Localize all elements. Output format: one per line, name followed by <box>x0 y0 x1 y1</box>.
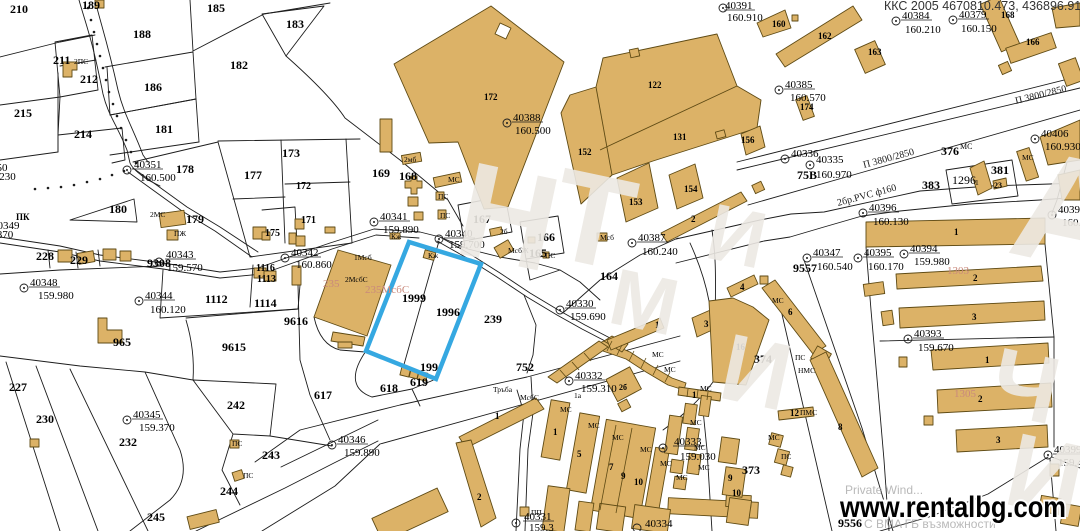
svg-text:40334: 40334 <box>645 518 673 530</box>
svg-text:159.370: 159.370 <box>139 422 175 434</box>
svg-text:Кж: Кж <box>428 251 439 260</box>
svg-text:МС: МС <box>664 365 676 374</box>
svg-text:9615: 9615 <box>222 340 246 354</box>
svg-text:160.210: 160.210 <box>905 24 941 36</box>
svg-text:229: 229 <box>70 253 88 267</box>
svg-text:1: 1 <box>692 390 697 400</box>
svg-text:162: 162 <box>818 31 832 41</box>
svg-text:МС: МС <box>768 433 780 442</box>
svg-text:160.500: 160.500 <box>515 125 551 137</box>
svg-text:ПК: ПК <box>16 212 30 222</box>
svg-text:9557: 9557 <box>793 261 817 275</box>
svg-text:МС: МС <box>560 405 572 414</box>
svg-text:159.570: 159.570 <box>167 262 203 274</box>
svg-text:131: 131 <box>673 132 687 142</box>
svg-text:ПС: ПС <box>440 211 450 220</box>
svg-text:381: 381 <box>991 163 1009 177</box>
svg-text:2МсбС: 2МсбС <box>345 275 368 284</box>
svg-text:1303: 1303 <box>947 265 970 277</box>
svg-text:2: 2 <box>978 394 983 404</box>
svg-text:160.500: 160.500 <box>140 172 176 184</box>
svg-text:159.670: 159.670 <box>918 342 954 354</box>
svg-text:215: 215 <box>14 106 32 120</box>
svg-text:1а: 1а <box>574 391 582 400</box>
svg-text:23: 23 <box>994 181 1002 190</box>
svg-text:10: 10 <box>634 477 644 487</box>
svg-text:178: 178 <box>176 162 194 176</box>
svg-text:154: 154 <box>684 184 698 194</box>
svg-text:230: 230 <box>36 412 54 426</box>
svg-text:159.890: 159.890 <box>344 447 380 459</box>
svg-text:2ПС: 2ПС <box>74 57 88 66</box>
svg-text:618: 618 <box>380 381 398 395</box>
svg-text:6: 6 <box>788 307 793 317</box>
svg-text:214: 214 <box>74 127 92 141</box>
svg-text:199: 199 <box>420 360 438 374</box>
svg-text:173: 173 <box>282 146 300 160</box>
svg-text:9: 9 <box>728 473 733 483</box>
svg-text:160: 160 <box>772 19 786 29</box>
svg-text:245: 245 <box>147 510 165 524</box>
svg-text:171: 171 <box>301 215 316 226</box>
svg-text:3: 3 <box>972 312 977 322</box>
svg-text:182: 182 <box>230 58 248 72</box>
svg-text:1113: 1113 <box>257 274 276 285</box>
svg-text:212: 212 <box>80 72 98 86</box>
svg-text:12: 12 <box>790 408 800 418</box>
svg-text:189: 189 <box>82 0 100 12</box>
svg-text:1: 1 <box>495 411 500 421</box>
svg-text:166: 166 <box>1026 37 1040 47</box>
svg-text:1: 1 <box>985 355 990 365</box>
svg-text:185: 185 <box>207 1 225 15</box>
svg-text:ПС: ПС <box>232 439 242 448</box>
svg-text:163: 163 <box>868 47 882 57</box>
svg-text:5: 5 <box>577 449 582 459</box>
svg-text:ПС: ПС <box>781 452 791 461</box>
svg-text:МС: МС <box>960 142 972 151</box>
svg-text:МсбС: МсбС <box>520 393 539 402</box>
svg-text:228: 228 <box>36 249 54 263</box>
svg-text:МС: МС <box>694 443 706 452</box>
svg-text:122: 122 <box>648 80 662 90</box>
svg-text:75В: 75В <box>797 168 817 182</box>
svg-text:2МС: 2МС <box>150 210 165 219</box>
svg-text:1: 1 <box>954 227 959 237</box>
svg-text:159.980: 159.980 <box>914 256 950 268</box>
svg-text:168: 168 <box>399 169 417 183</box>
svg-text:183: 183 <box>286 17 304 31</box>
svg-text:172: 172 <box>296 181 311 192</box>
svg-text:ПС: ПС <box>438 192 448 201</box>
svg-text:210: 210 <box>10 2 28 16</box>
svg-text:1996: 1996 <box>436 305 460 319</box>
svg-text:175: 175 <box>265 228 280 239</box>
svg-text:169: 169 <box>372 166 390 180</box>
svg-text:ПС: ПС <box>243 471 253 480</box>
svg-text:2б: 2б <box>619 383 627 392</box>
svg-text:160.540: 160.540 <box>817 261 853 273</box>
svg-text:ПМС: ПМС <box>800 408 817 417</box>
svg-text:2: 2 <box>973 273 978 283</box>
svg-text:383: 383 <box>922 178 940 192</box>
svg-text:МС: МС <box>690 418 702 427</box>
svg-text:243: 243 <box>262 448 280 462</box>
svg-text:965: 965 <box>113 335 131 349</box>
svg-text:4: 4 <box>740 282 745 292</box>
svg-text:617: 617 <box>314 388 332 402</box>
svg-text:ПП: ПП <box>531 508 542 517</box>
svg-text:ККС 2005 4670810.473, 436896.9: ККС 2005 4670810.473, 436896.910 <box>884 0 1080 13</box>
svg-text:МС: МС <box>698 463 710 472</box>
svg-text:МС: МС <box>448 175 460 184</box>
svg-text:242: 242 <box>227 398 245 412</box>
svg-text:1: 1 <box>975 178 979 187</box>
svg-text:9: 9 <box>621 471 626 481</box>
svg-text:373: 373 <box>742 463 760 477</box>
svg-text:8: 8 <box>838 422 843 432</box>
svg-text:www.rentalbg.com: www.rentalbg.com <box>839 491 1066 524</box>
svg-text:2: 2 <box>691 214 696 224</box>
svg-text:376: 376 <box>941 144 959 158</box>
svg-text:160.130: 160.130 <box>873 216 909 228</box>
svg-text:МС: МС <box>612 433 624 442</box>
svg-text:1296: 1296 <box>952 173 976 187</box>
svg-text:.870: .870 <box>0 229 14 241</box>
svg-text:159.030: 159.030 <box>680 451 716 463</box>
svg-text:160.970: 160.970 <box>816 169 852 181</box>
svg-text:244: 244 <box>220 484 238 498</box>
svg-text:Кж: Кж <box>391 232 402 241</box>
svg-text:9308: 9308 <box>147 256 171 270</box>
svg-text:40335: 40335 <box>816 154 844 166</box>
svg-text:227: 227 <box>9 380 27 394</box>
svg-text:159.310: 159.310 <box>581 383 617 395</box>
svg-text:2мб: 2мб <box>404 155 416 164</box>
svg-text:Тръба: Тръба <box>493 385 513 394</box>
svg-text:160.230: 160.230 <box>0 171 16 183</box>
svg-text:235: 235 <box>323 278 340 290</box>
svg-text:1114: 1114 <box>254 296 277 310</box>
svg-text:160.170: 160.170 <box>868 261 904 273</box>
svg-text:7: 7 <box>609 462 614 472</box>
svg-text:1305: 1305 <box>954 388 977 400</box>
svg-text:НМС: НМС <box>798 366 815 375</box>
svg-text:160.150: 160.150 <box>961 23 997 35</box>
svg-text:752: 752 <box>516 360 534 374</box>
svg-text:172: 172 <box>484 92 498 102</box>
svg-text:188: 188 <box>133 27 151 41</box>
svg-text:МС: МС <box>676 473 688 482</box>
svg-text:1116: 1116 <box>256 263 275 274</box>
svg-text:619: 619 <box>410 375 428 389</box>
svg-text:МС: МС <box>652 350 664 359</box>
svg-text:181: 181 <box>155 122 173 136</box>
svg-text:160.120: 160.120 <box>150 304 186 316</box>
svg-text:3: 3 <box>996 435 1001 445</box>
svg-text:177: 177 <box>244 168 262 182</box>
svg-text:9616: 9616 <box>284 314 308 328</box>
svg-text:211: 211 <box>53 53 70 67</box>
svg-text:159.980: 159.980 <box>38 290 74 302</box>
svg-text:МС: МС <box>640 445 652 454</box>
svg-text:239: 239 <box>484 312 502 326</box>
svg-text:40336: 40336 <box>791 148 819 160</box>
svg-text:232: 232 <box>119 435 137 449</box>
svg-text:160.910: 160.910 <box>727 12 763 24</box>
svg-text:160.860: 160.860 <box>296 259 332 271</box>
svg-text:179: 179 <box>186 212 204 226</box>
svg-text:1Мсб: 1Мсб <box>354 253 372 262</box>
svg-text:159.690: 159.690 <box>570 311 606 323</box>
svg-text:МС: МС <box>660 459 672 468</box>
svg-text:235МсбС: 235МсбС <box>365 284 409 296</box>
svg-text:174: 174 <box>800 102 814 112</box>
svg-text:159.3: 159.3 <box>529 522 554 531</box>
svg-text:10: 10 <box>732 488 742 498</box>
svg-text:186: 186 <box>144 80 162 94</box>
svg-text:156: 156 <box>741 135 755 145</box>
svg-text:180: 180 <box>109 202 127 216</box>
svg-text:1112: 1112 <box>205 292 228 306</box>
svg-text:3: 3 <box>704 319 709 329</box>
svg-text:МС: МС <box>700 384 712 393</box>
svg-text:1: 1 <box>553 427 558 437</box>
svg-text:ПЖ: ПЖ <box>174 229 186 238</box>
svg-text:МС: МС <box>772 296 784 305</box>
svg-text:ПС: ПС <box>795 353 805 362</box>
svg-text:2: 2 <box>477 492 482 502</box>
svg-text:МС: МС <box>588 421 600 430</box>
